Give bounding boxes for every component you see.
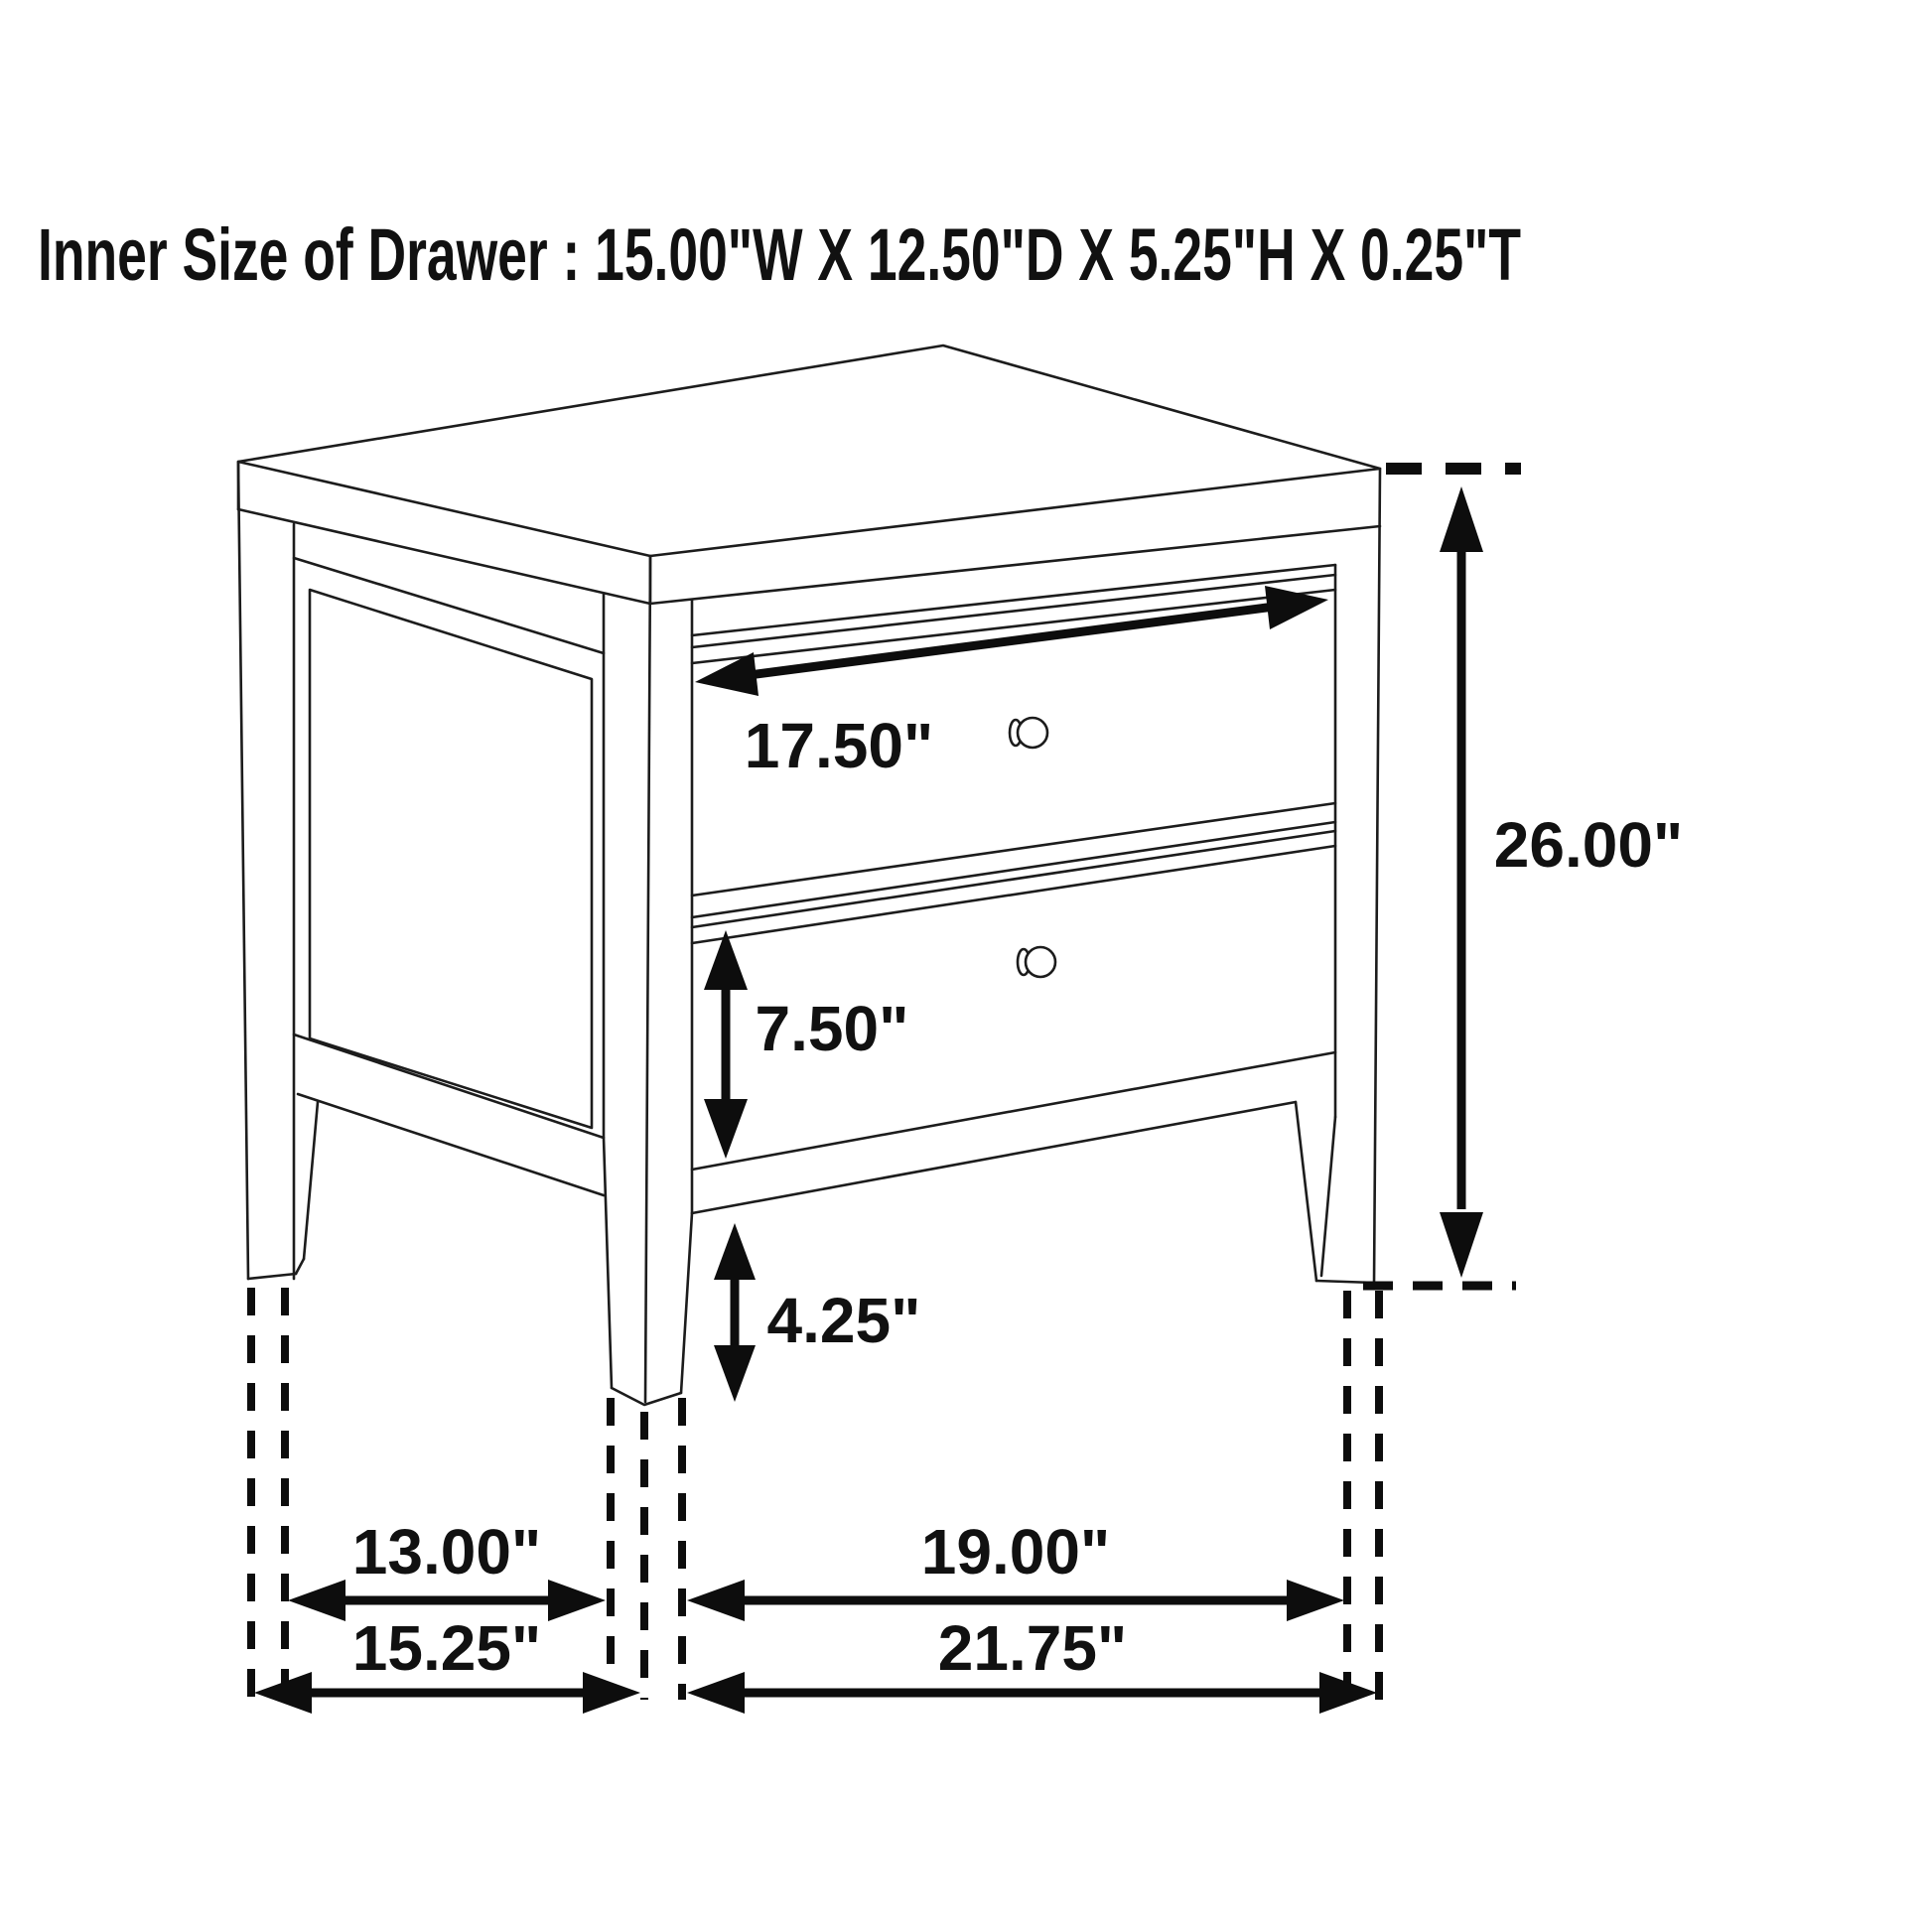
dim-arrow-bottom-drawer-height [704, 930, 748, 1159]
dim-label-front-width-inner: 19.00" [921, 1516, 1111, 1587]
diagram-title: Inner Size of Drawer : 15.00"W X 12.50"D… [38, 213, 1521, 296]
left-rear-edge [238, 462, 248, 1279]
dimension-diagram: Inner Size of Drawer : 15.00"W X 12.50"D… [0, 0, 1932, 1932]
nightstand-drawing [238, 345, 1380, 1405]
dim-arrow-leg-height [714, 1223, 756, 1402]
dim-label-bottom-drawer-height: 7.50" [756, 993, 909, 1064]
side-panel [294, 524, 604, 1279]
front-right-leg [1296, 1102, 1374, 1283]
nightstand-dimension-drawing: Inner Size of Drawer : 15.00"W X 12.50"D… [0, 0, 1932, 1932]
right-front-edge [1374, 469, 1380, 1284]
dim-label-overall-height: 26.00" [1494, 809, 1684, 881]
dim-label-side-width-overall: 15.25" [352, 1612, 542, 1684]
front-corner-edge [645, 556, 650, 1402]
bottom-rail [692, 1052, 1335, 1213]
dim-label-side-width-inner: 13.00" [352, 1516, 542, 1587]
dim-arrow-overall-height [1440, 486, 1483, 1278]
top-face [238, 345, 1380, 604]
dim-label-drawer-width: 17.50" [745, 710, 934, 781]
rear-left-leg [248, 1102, 318, 1279]
drawer-2-knob [1026, 947, 1055, 977]
dim-label-leg-height: 4.25" [767, 1285, 921, 1356]
dim-label-front-width-overall: 21.75" [938, 1612, 1128, 1684]
drawer-1-knob [1018, 718, 1047, 748]
